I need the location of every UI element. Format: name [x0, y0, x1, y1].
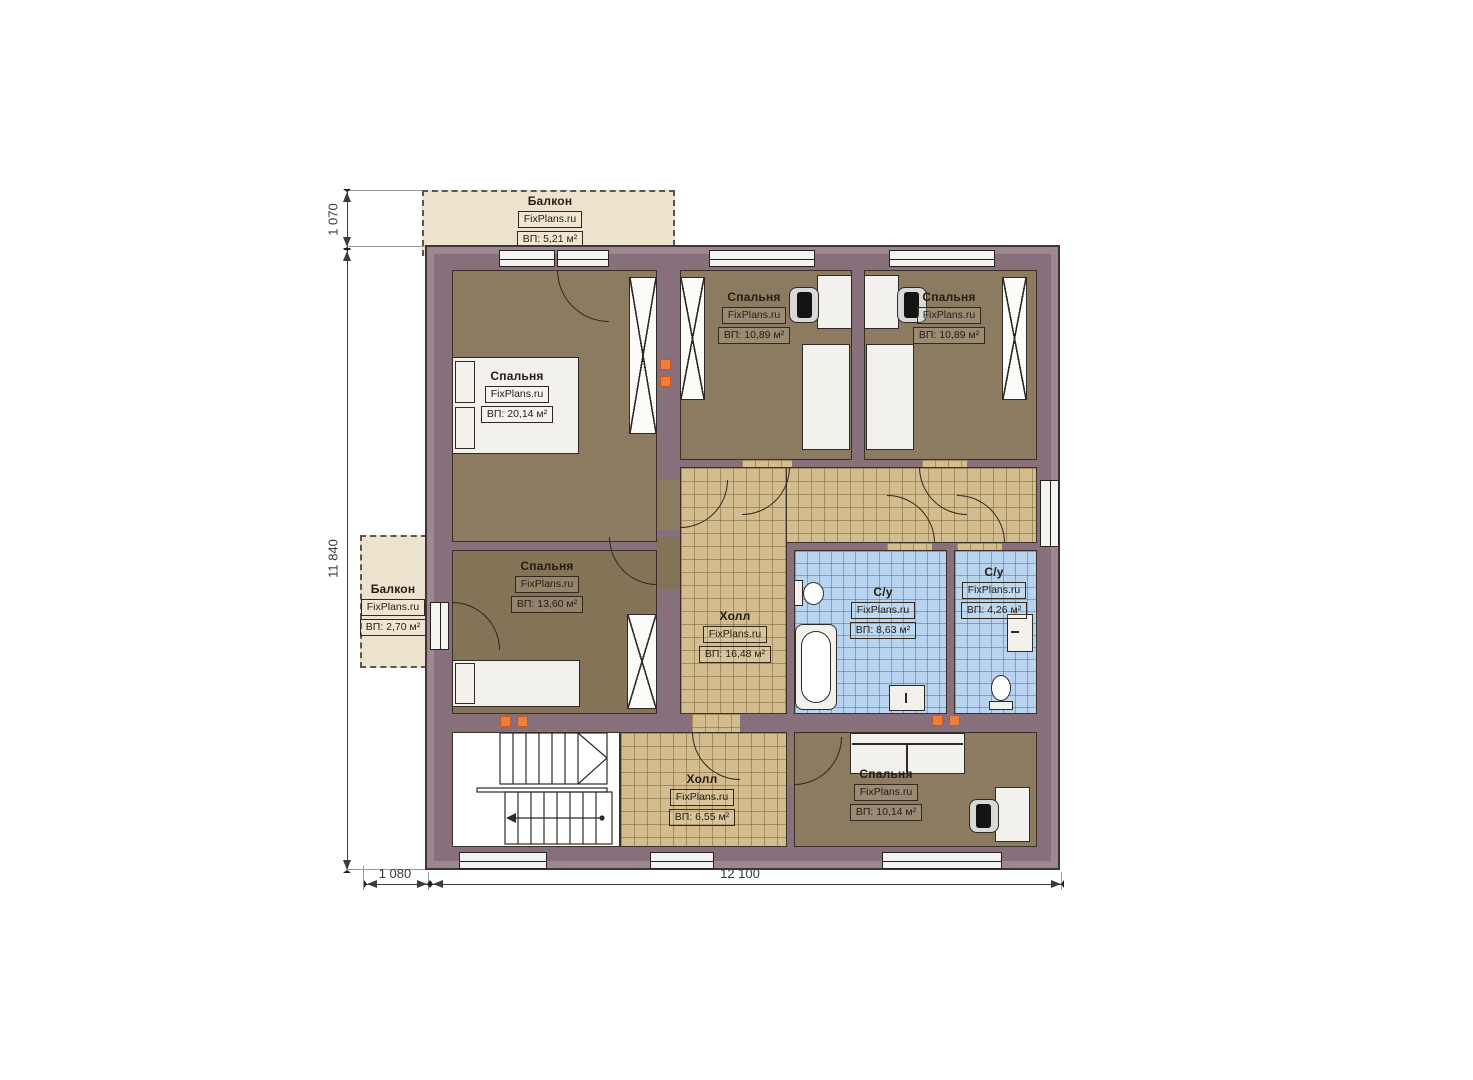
window-top-1 — [499, 250, 555, 267]
dimension-arrow — [364, 880, 377, 888]
window-right-1 — [1040, 480, 1059, 547]
wardrobe — [1002, 277, 1027, 400]
toilet-tank — [989, 701, 1013, 710]
door-gap-hall-to-bathroom-small — [957, 543, 1002, 550]
vent-marker — [517, 716, 528, 727]
window-bottom-2 — [650, 852, 714, 869]
vent-marker — [660, 376, 671, 387]
window-bottom-3 — [882, 852, 1002, 869]
office-chair-seat — [904, 292, 919, 318]
dimension-line-left — [347, 190, 348, 870]
single-bed — [866, 344, 914, 450]
dimension-arrow — [417, 880, 430, 888]
stairs-start-dot — [599, 815, 604, 820]
desk — [817, 275, 852, 329]
door-frame-line — [440, 603, 442, 649]
washing-machine-handle — [1011, 631, 1019, 633]
door-gap-hall-to-bathroom-large — [887, 543, 932, 550]
toilet-tank — [794, 580, 803, 606]
building-outline: Спальня FixPlans.ru ВП: 20,14 м² Спальня… — [425, 245, 1060, 870]
floor-plan-canvas: Балкон FixPlans.ru ВП: 5,21 м² Балкон Fi… — [0, 0, 1473, 1080]
window-glass-line — [500, 259, 554, 261]
vent-marker — [660, 359, 671, 370]
dimension-building-height: 11 840 — [326, 529, 341, 589]
toilet-bowl — [803, 582, 824, 605]
pillow — [455, 663, 475, 704]
dimension-arrow — [343, 248, 351, 261]
window-glass-line — [890, 259, 994, 261]
window-bottom-1 — [459, 852, 547, 869]
bathtub-basin — [801, 631, 831, 703]
extension-line — [347, 246, 425, 247]
dimension-arrow — [430, 880, 443, 888]
sofa-back-line — [852, 743, 963, 745]
pillow — [455, 361, 475, 403]
door-gap-hall-to-bedroom-mid-left — [657, 537, 680, 590]
wardrobe — [627, 614, 657, 709]
dimension-balcony-width: 1 080 — [365, 866, 425, 881]
dimension-arrow — [343, 189, 351, 202]
staircase — [452, 732, 620, 847]
door-gap-hall-to-bedroom-top-middle — [742, 460, 792, 467]
window-glass-line — [460, 861, 546, 863]
door-frame-line — [558, 259, 608, 261]
extension-line — [347, 190, 422, 191]
balcony-left-door — [430, 602, 449, 650]
window-glass-line — [651, 861, 713, 863]
sink-tap — [905, 693, 907, 703]
window-glass-line — [1050, 481, 1052, 546]
balcony-top-door — [557, 250, 609, 267]
wardrobe — [629, 277, 657, 434]
sofa — [850, 733, 965, 774]
window-glass-line — [883, 861, 1001, 863]
single-bed — [802, 344, 850, 450]
dimension-arrow — [1051, 880, 1064, 888]
washing-machine — [1007, 614, 1033, 652]
stairs-direction-arrow — [506, 813, 516, 823]
door-gap-to-hall-bottom — [692, 714, 740, 732]
desk — [864, 275, 899, 329]
vent-marker — [500, 716, 511, 727]
desk — [995, 787, 1030, 842]
toilet-bowl — [991, 675, 1011, 701]
office-chair-seat — [797, 292, 812, 318]
window-glass-line — [710, 259, 814, 261]
pillow — [455, 407, 475, 449]
wardrobe — [680, 277, 705, 400]
window-top-3 — [889, 250, 995, 267]
sink — [889, 685, 925, 711]
dimension-balcony-height: 1 070 — [326, 190, 341, 250]
office-chair-seat — [976, 804, 991, 828]
dimension-building-width: 12 100 — [710, 866, 770, 881]
vent-marker — [949, 715, 960, 726]
vent-marker — [932, 715, 943, 726]
door-gap-to-bedroom-bottom — [787, 737, 794, 785]
sofa-cushion-divider — [906, 745, 908, 772]
door-gap-hall-to-bedroom-top-left — [657, 480, 680, 530]
balcony-left — [360, 535, 427, 668]
door-gap-hall-to-bedroom-top-right — [922, 460, 967, 467]
dimension-line-bottom — [363, 884, 1062, 885]
window-top-2 — [709, 250, 815, 267]
dimension-arrow — [343, 860, 351, 873]
